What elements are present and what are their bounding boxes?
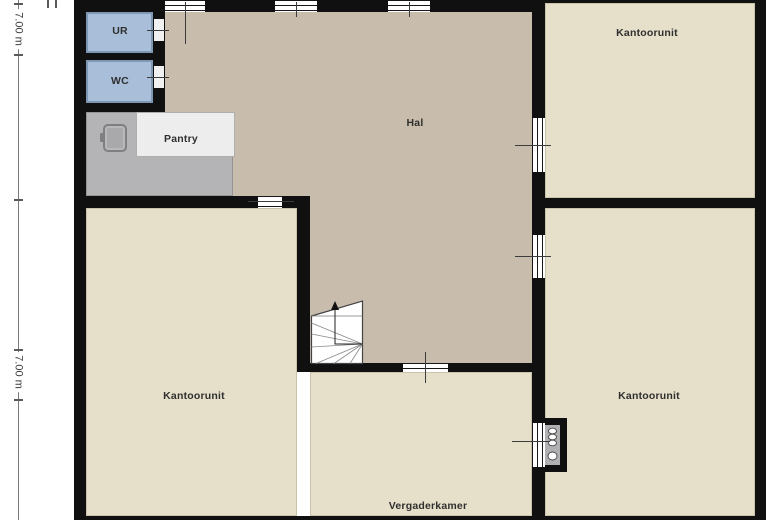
room-label-vergaderkamer: Vergaderkamer xyxy=(389,500,467,512)
window-tick xyxy=(248,201,294,203)
window-tick xyxy=(185,2,187,44)
door-tick xyxy=(147,77,169,79)
wall-top-right-sliver xyxy=(545,0,766,3)
dimension-tick xyxy=(14,399,23,401)
window-tick xyxy=(425,352,427,383)
room-label-ur: UR xyxy=(112,25,128,37)
stairs-icon xyxy=(308,297,366,366)
wall-below-wc xyxy=(74,103,165,112)
dimension-label-top: 7.00 m xyxy=(13,9,25,49)
door-tick xyxy=(147,30,169,32)
sink-handle-icon xyxy=(100,133,104,142)
meter-closet-door xyxy=(532,423,545,467)
dimension-tick xyxy=(14,3,23,5)
room-label-kantoorunit-bottom-left: Kantoorunit xyxy=(163,390,225,402)
room-label-pantry: Pantry xyxy=(164,133,198,145)
window xyxy=(258,196,282,208)
dimension-tick xyxy=(14,349,23,351)
dimension-tick xyxy=(47,0,49,8)
room-kantoorunit-bottom-right-floor xyxy=(545,208,755,516)
dimension-tick xyxy=(55,0,57,8)
meter-fixtures-icon xyxy=(545,425,560,465)
window-tick xyxy=(515,145,551,147)
window-tick xyxy=(515,256,551,258)
dimension-tick xyxy=(14,199,23,201)
wall-right-rooms-divider xyxy=(532,198,766,208)
room-kantoorunit-bottom-left-floor xyxy=(86,208,297,516)
window-tick xyxy=(296,2,298,17)
wall-right-outer xyxy=(755,0,766,520)
room-vergaderkamer-floor xyxy=(310,372,532,516)
floor-plan-canvas: Hal Kantoorunit Kantoorunit Kantoorunit … xyxy=(0,0,780,520)
window-tick xyxy=(409,2,411,17)
wall-ur-wc-divider xyxy=(86,53,153,60)
room-label-wc: WC xyxy=(111,75,129,87)
dimension-line xyxy=(18,0,19,520)
dimension-label-bottom: 7.00 m xyxy=(13,352,25,392)
sink-icon xyxy=(103,124,127,152)
window-tick xyxy=(512,441,550,443)
dimension-tick xyxy=(14,54,23,56)
wall-below-pantry xyxy=(74,196,262,208)
room-label-hal: Hal xyxy=(407,117,424,129)
wall-niche-bottom xyxy=(545,465,567,472)
wall-niche-right xyxy=(560,418,567,472)
wall-bottom-edge xyxy=(74,516,766,520)
room-label-kantoorunit-bottom-right: Kantoorunit xyxy=(618,390,680,402)
wall-left-outer xyxy=(74,0,86,520)
room-label-kantoorunit-top-right: Kantoorunit xyxy=(616,27,678,39)
